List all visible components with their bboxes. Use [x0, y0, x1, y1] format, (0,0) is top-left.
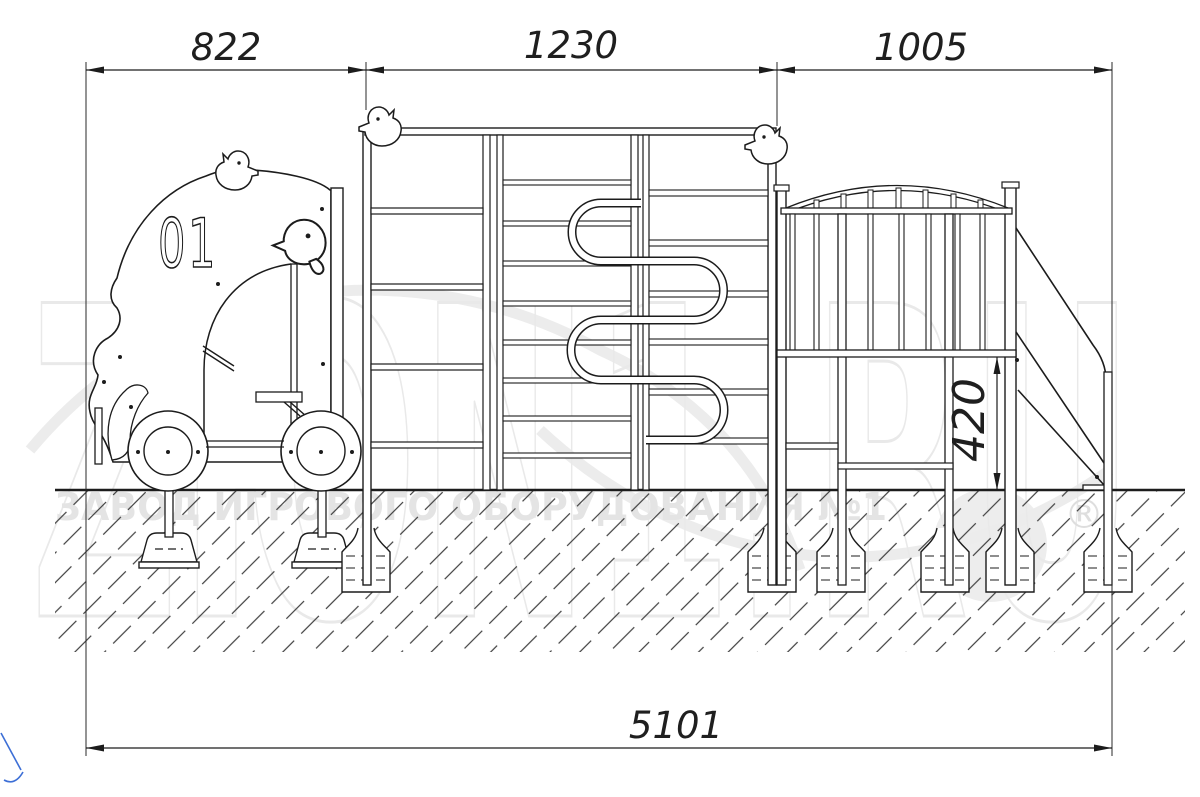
tower-slat: [790, 214, 795, 352]
drawing-canvas: ZЮN1.RU ЗАВОД ИГРОВОГО ОБОРУДОВАНИЯ №1 ®: [0, 0, 1200, 797]
frame-rung: [649, 389, 768, 395]
rear-wheel: [281, 411, 361, 491]
frame-inner-post: [483, 135, 490, 490]
dimension-1230: 1230: [524, 24, 618, 67]
frame-rung: [503, 221, 631, 226]
platform-floor: [777, 350, 1016, 357]
dimension-822: 822: [191, 26, 262, 69]
tower-left-post: [777, 190, 786, 585]
frame-top-bar: [365, 128, 776, 135]
frame-rung: [649, 339, 768, 345]
wheel-post: [318, 487, 326, 537]
frame-inner-post: [497, 135, 503, 490]
tower-post-cap: [1002, 182, 1019, 188]
tower-slat: [926, 214, 931, 352]
wheel-post: [165, 487, 173, 537]
car-seat: [256, 392, 302, 402]
frame-rung: [503, 301, 631, 306]
dimension-5101: 5101: [629, 704, 723, 747]
frame-inner-post: [631, 135, 638, 490]
tower-slat: [899, 214, 904, 352]
dimension-1005: 1005: [874, 26, 968, 69]
panel-bottom-rail: [838, 463, 953, 469]
tower-lower-rail: [786, 443, 838, 449]
tower-slat: [980, 214, 985, 352]
frame-rung: [649, 291, 768, 297]
frame-right-post: [768, 135, 776, 585]
tower-panel-post: [838, 214, 846, 585]
tower-post-cap: [774, 185, 789, 191]
tower-slat: [955, 214, 960, 352]
frame-rung: [503, 180, 631, 185]
frame-rung: [649, 190, 768, 196]
frame-rung: [503, 416, 631, 421]
frame-rung: [371, 442, 483, 448]
wheel-pad: [139, 533, 199, 568]
corner-artifact: [1, 733, 23, 782]
tower-top-rail: [781, 208, 1012, 214]
tower-slat: [868, 214, 873, 352]
drawing-sheet: ZЮN1.RU ЗАВОД ИГРОВОГО ОБОРУДОВАНИЯ №1 ®: [0, 0, 1200, 797]
slide-leg: [1104, 372, 1112, 585]
frame-rung: [503, 453, 631, 458]
frame-rung: [649, 240, 768, 246]
car-step: [95, 408, 102, 464]
front-wheel: [128, 411, 208, 491]
frame-rung: [371, 364, 483, 370]
frame-rung: [371, 284, 483, 290]
tower-right-post: [1005, 187, 1016, 585]
car-number: 01: [158, 205, 218, 284]
frame-left-post: [363, 130, 371, 585]
dimension-420: 420: [944, 378, 995, 462]
tower-slat: [814, 214, 819, 352]
frame-rung: [371, 208, 483, 214]
